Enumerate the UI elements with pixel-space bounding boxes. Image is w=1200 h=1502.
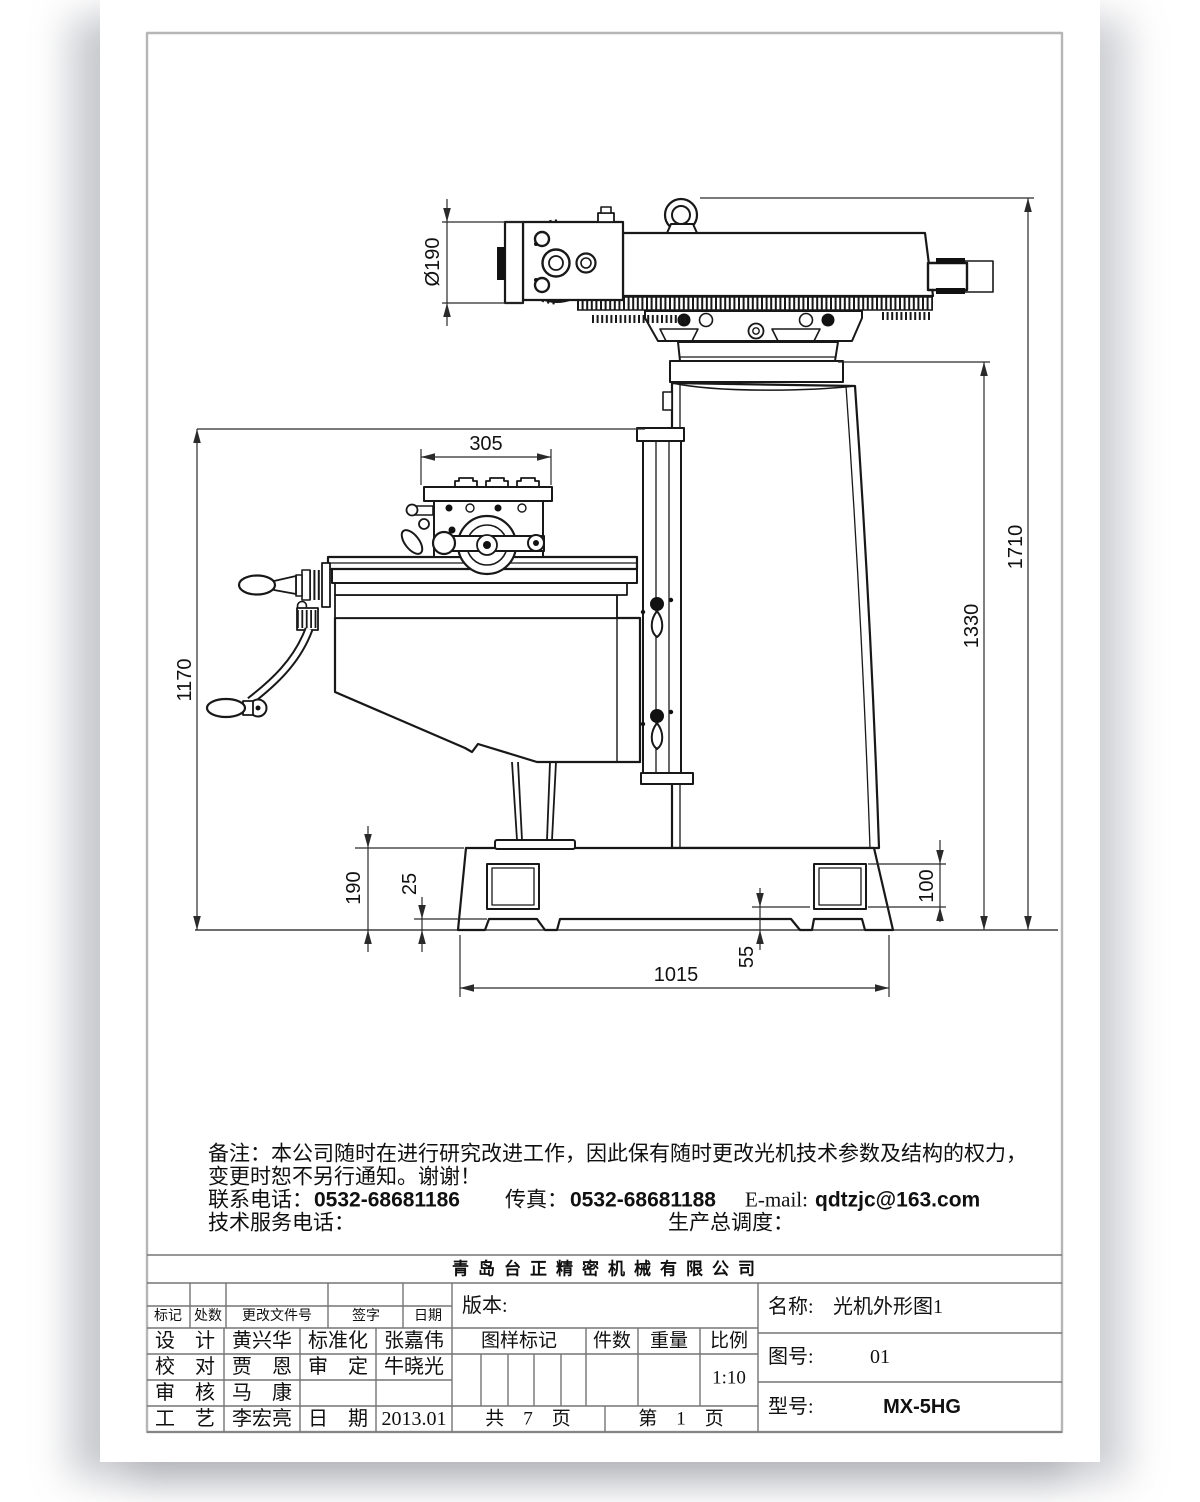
ram-end-cap <box>928 258 993 294</box>
dim-vise-width-label: 305 <box>469 433 502 455</box>
staff-name: 李宏亮 <box>232 1409 292 1429</box>
drawing-name-value: 光机外形图1 <box>833 1297 943 1317</box>
machine-base <box>458 848 893 930</box>
page-number: 第 1 页 <box>638 1410 724 1429</box>
name-label: 名称: <box>768 1297 814 1317</box>
rev-fileno-header: 更改文件号 <box>242 1310 312 1324</box>
rev-qty-header: 处数 <box>194 1310 222 1324</box>
email-label: E-mail: <box>745 1190 808 1211</box>
staff-role: 审 核 <box>155 1383 215 1403</box>
version-label: 版本: <box>462 1296 508 1316</box>
service-phone-label: 技术服务电话： <box>208 1213 355 1234</box>
staff-role: 审 定 <box>308 1357 368 1377</box>
staff-date-value: 2013.01 <box>382 1409 447 1429</box>
dim-pocket-height-label: 100 <box>916 869 938 902</box>
staff-name: 马 康 <box>232 1383 292 1403</box>
screenshot-canvas: { "dims": { "head_dia": "Ø190", "table_w… <box>0 0 1200 1502</box>
knee <box>335 618 640 762</box>
lifting-eye-bolt <box>665 199 697 233</box>
rev-mark-header: 标记 <box>154 1310 182 1324</box>
figure-no-label: 图号: <box>768 1347 814 1367</box>
scale-value: 1:10 <box>712 1369 746 1388</box>
note-line-2: 变更时恕不另行通知。谢谢！ <box>208 1167 481 1188</box>
dim-foot-height-label: 25 <box>399 873 421 895</box>
crank-handle <box>207 602 318 718</box>
dim-overall-height-label: 1710 <box>1005 525 1027 570</box>
dim-swivel-height-label: 1330 <box>961 604 983 649</box>
phone-value: 0532-68681186 <box>314 1190 460 1211</box>
staff-role: 设 计 <box>155 1331 215 1351</box>
rev-date-header: 日期 <box>414 1310 442 1324</box>
email-value: qdtzjc@163.com <box>815 1190 980 1211</box>
dispatch-label: 生产总调度： <box>668 1213 794 1234</box>
dim-head-diameter-label: Ø190 <box>422 238 444 287</box>
staff-role: 日 期 <box>308 1409 368 1429</box>
rev-sign-header: 签字 <box>352 1310 380 1324</box>
dim-base-height-label: 190 <box>343 871 365 904</box>
pieces-header: 件数 <box>593 1332 631 1351</box>
note-line-1: 备注：本公司随时在进行研究改进工作，因此保有随时更改光机技术参数及结构的权力， <box>208 1144 1027 1165</box>
lock-lever <box>398 527 426 558</box>
staff-role: 工 艺 <box>155 1409 215 1429</box>
staff-role: 标准化 <box>308 1331 368 1351</box>
staff-role: 校 对 <box>155 1357 215 1377</box>
turret-swivel-base <box>670 342 843 382</box>
turret-plate <box>645 311 862 341</box>
table-handwheel <box>239 563 330 607</box>
dim-base-length: 1015 <box>460 935 889 997</box>
ram <box>623 199 993 296</box>
table-and-knee <box>207 557 640 762</box>
fax-value: 0532-68681188 <box>570 1190 716 1211</box>
milling-machine-figure <box>195 199 1058 930</box>
company-name: 青岛台正精密机械有限公司 <box>452 1261 764 1278</box>
weight-header: 重量 <box>650 1332 688 1351</box>
sample-mark-header: 图样标记 <box>481 1332 557 1351</box>
dim-pocket-gap-label: 55 <box>736 946 758 968</box>
spindle-bore <box>543 250 570 277</box>
staff-name: 贾 恩 <box>232 1357 292 1377</box>
fax-label: 传真： <box>505 1190 568 1211</box>
phone-label: 联系电话： <box>208 1190 313 1211</box>
dim-base-length-label: 1015 <box>654 964 699 986</box>
dim-knee-top-height-label: 1170 <box>174 658 196 701</box>
figure-no-value: 01 <box>870 1347 890 1367</box>
model-value: MX-5HG <box>883 1397 961 1417</box>
column <box>663 383 879 848</box>
staff-name: 牛晓光 <box>384 1357 444 1377</box>
scale-label: 比例 <box>710 1332 748 1351</box>
staff-name: 黄兴华 <box>232 1331 292 1351</box>
model-label: 型号: <box>768 1397 814 1417</box>
elevating-screw <box>495 762 575 849</box>
total-pages: 共 7 页 <box>485 1410 571 1429</box>
staff-name: 张嘉伟 <box>384 1331 444 1351</box>
